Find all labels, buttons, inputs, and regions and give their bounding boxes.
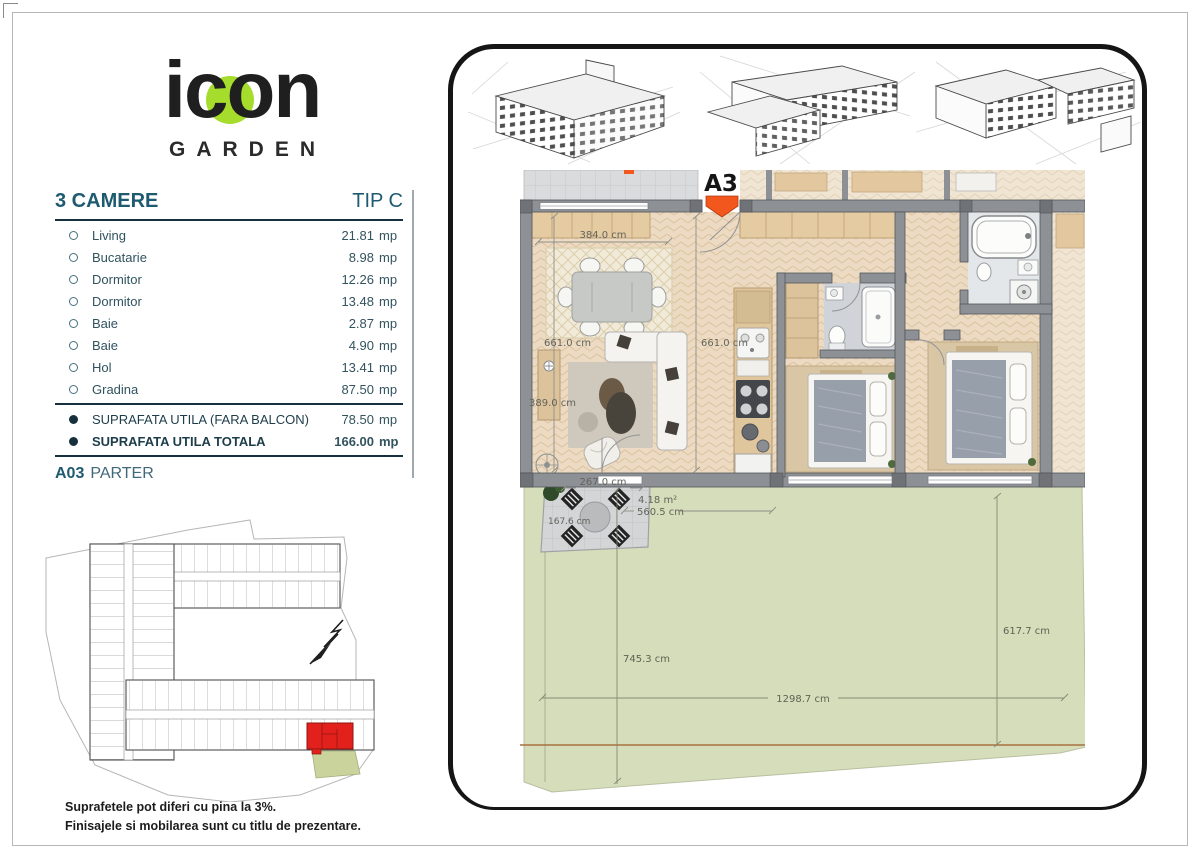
corner-crop-mark [3,3,18,18]
bullet-icon [69,437,78,446]
bullet-icon [69,415,78,424]
total-label: SUPRAFATA UTILA (FARA BALCON) [92,412,309,427]
svg-text:560.5 cm: 560.5 cm [637,507,684,518]
room-area: 13.48 [322,294,374,309]
room-unit: mp [379,382,403,397]
spec-separator-line [412,190,414,478]
total-unit: mp [379,434,403,449]
divider [55,403,403,405]
room-unit: mp [379,250,403,265]
room-area: 2.87 [322,316,374,331]
room-label: Gradina [92,382,138,397]
svg-text:745.3 cm: 745.3 cm [623,654,670,665]
room-unit: mp [379,272,403,287]
room-row: Baie4.90mp [55,334,403,356]
room-area: 12.26 [322,272,374,287]
bedroom-2 [928,342,1038,470]
total-area: 78.50 [322,412,374,427]
fridge [735,454,771,475]
site-plan [38,512,383,802]
brochure-page: icon GARDEN 3 CAMERE TIP C Living21.81mp… [0,0,1200,858]
spec-title: 3 CAMERE [55,190,158,213]
building-render-2 [690,52,915,170]
room-unit: mp [379,360,403,375]
site-garden-highlight [312,751,360,778]
svg-text:617.7 cm: 617.7 cm [1003,626,1050,637]
brand-tagline: GARDEN [148,138,336,162]
room-area: 87.50 [322,382,374,397]
bathroom-2 [968,212,1040,304]
disclaimer-line-1: Suprafetele pot diferi cu pina la 3%. [65,798,361,817]
bullet-icon [69,385,78,394]
bullet-icon [69,253,78,262]
building-render-1 [468,54,680,166]
bullet-icon [69,275,78,284]
spec-type-label: TIP C [352,190,403,213]
spec-card: 3 CAMERE TIP C Living21.81mp Bucatarie8.… [55,190,403,483]
brand-name-text: icon [164,45,320,134]
total-row: SUPRAFATA UTILA (FARA BALCON)78.50mp [55,408,403,430]
bullet-icon [69,363,78,372]
room-unit: mp [379,338,403,353]
room-area: 13.41 [322,360,374,375]
floor-plan: A3 384.0 cm 661.0 cm 661.0 cm 389.0 cm 2… [520,170,1085,802]
room-row: Dormitor13.48mp [55,290,403,312]
disclaimer-line-2: Finisajele si mobilarea sunt cu titlu de… [65,817,361,836]
room-row: Bucatarie8.98mp [55,246,403,268]
building-render-3 [916,52,1141,170]
bullet-icon [69,341,78,350]
room-unit: mp [379,294,403,309]
unit-marker-label: A3 [704,171,738,197]
room-label: Dormitor [92,272,142,287]
svg-text:167.6 cm: 167.6 cm [548,517,590,527]
svg-text:1298.7 cm: 1298.7 cm [776,694,829,705]
dining-table [572,272,652,322]
room-row: Gradina87.50mp [55,378,403,400]
pillow [870,382,886,416]
room-row: Living21.81mp [55,224,403,246]
svg-text:384.0 cm: 384.0 cm [579,230,626,241]
room-label: Baie [92,338,118,353]
room-label: Dormitor [92,294,142,309]
room-area: 4.90 [322,338,374,353]
room-label: Hol [92,360,112,375]
total-area: 166.00 [322,434,374,449]
room-row: Dormitor12.26mp [55,268,403,290]
total-unit: mp [379,412,403,427]
room-row: Baie2.87mp [55,312,403,334]
kitchen [734,288,772,476]
room-label: Bucatarie [92,250,147,265]
room-unit: mp [379,316,403,331]
svg-text:661.0 cm: 661.0 cm [544,338,591,349]
pillow [1010,364,1026,400]
room-label: Living [92,228,126,243]
svg-text:389.0 cm: 389.0 cm [529,398,576,409]
room-row: Hol13.41mp [55,356,403,378]
room-area: 21.81 [322,228,374,243]
bullet-icon [69,319,78,328]
toilet [977,263,991,281]
unit-identifier: A03PARTER [55,465,403,483]
site-unit-highlight [307,723,353,754]
total-label: SUPRAFATA UTILA TOTALA [92,434,266,449]
brand-name: icon [148,50,336,130]
disclaimer: Suprafetele pot diferi cu pina la 3%. Fi… [65,798,361,837]
north-arrow-icon [310,620,343,664]
total-row: SUPRAFATA UTILA TOTALA166.00mp [55,430,403,452]
room-unit: mp [379,228,403,243]
bullet-icon [69,231,78,240]
divider [55,219,403,221]
room-label: Baie [92,316,118,331]
neighbor-floor-right [1052,212,1085,473]
bathroom-1 [824,283,898,350]
brand-logo: icon GARDEN [148,50,336,162]
spec-header: 3 CAMERE TIP C [55,190,403,216]
neighbor-units-above [524,170,1085,204]
bedroom-1 [786,366,898,472]
svg-text:4.18 m²: 4.18 m² [638,495,677,506]
svg-text:661.0 cm: 661.0 cm [701,338,748,349]
unit-level: PARTER [90,465,153,482]
divider [55,455,403,457]
bullet-icon [69,297,78,306]
unit-code: A03 [55,465,84,482]
dining-area [546,248,672,338]
room-area: 8.98 [322,250,374,265]
svg-text:267.0 cm: 267.0 cm [579,477,626,488]
